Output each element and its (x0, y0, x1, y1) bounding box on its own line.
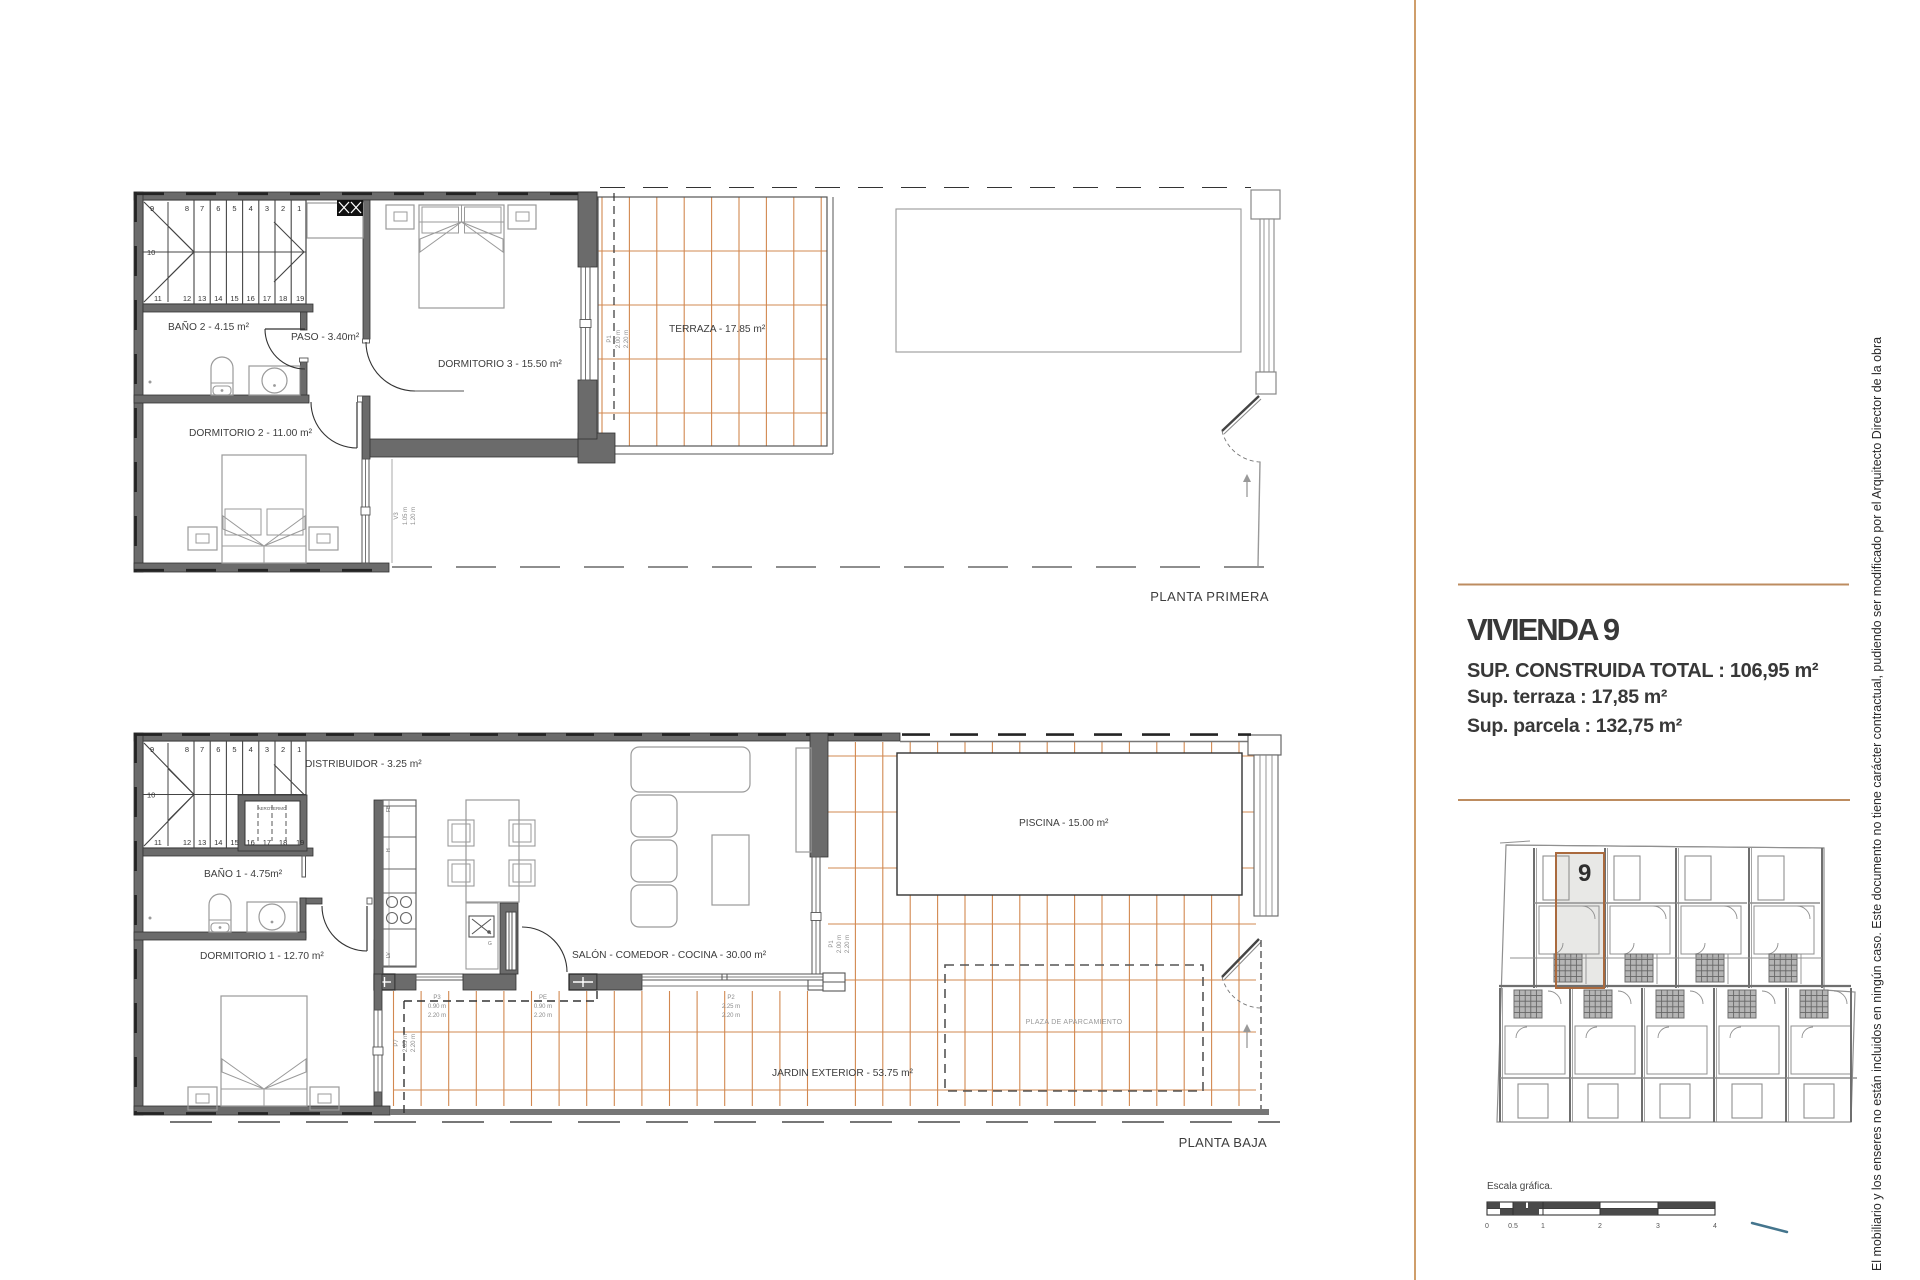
svg-text:5: 5 (232, 204, 236, 213)
svg-text:9: 9 (150, 204, 154, 213)
svg-text:14: 14 (214, 838, 222, 847)
svg-text:Escala gráfica.: Escala gráfica. (1487, 1181, 1553, 1192)
svg-text:DISTRIBUIDOR - 3.25 m²: DISTRIBUIDOR - 3.25 m² (305, 759, 422, 770)
svg-text:H: H (386, 848, 392, 852)
svg-text:12: 12 (183, 294, 191, 303)
svg-text:6: 6 (216, 204, 220, 213)
svg-text:Sup. parcela : 132,75 m²: Sup. parcela : 132,75 m² (1467, 715, 1683, 737)
svg-text:1: 1 (297, 745, 301, 754)
svg-text:17: 17 (263, 294, 271, 303)
svg-text:G: G (488, 941, 492, 947)
svg-text:AEROTERMO: AEROTERMO (257, 806, 287, 811)
svg-text:13: 13 (198, 294, 206, 303)
svg-text:18: 18 (279, 838, 287, 847)
svg-text:3: 3 (1656, 1223, 1660, 1230)
svg-text:2.20 m: 2.20 m (722, 1013, 740, 1019)
svg-text:PE: PE (539, 995, 547, 1001)
svg-text:3: 3 (265, 204, 269, 213)
svg-text:2: 2 (1598, 1223, 1602, 1230)
svg-text:4: 4 (1713, 1223, 1717, 1230)
svg-text:0.90 m: 0.90 m (534, 1004, 552, 1010)
svg-text:8: 8 (185, 745, 189, 754)
svg-text:2.20 m: 2.20 m (428, 1013, 446, 1019)
svg-text:2: 2 (281, 745, 285, 754)
svg-text:4: 4 (249, 204, 253, 213)
svg-text:1: 1 (297, 204, 301, 213)
svg-text:15: 15 (230, 838, 238, 847)
svg-text:V3: V3 (394, 512, 400, 520)
svg-text:DORMITORIO 3 - 15.50 m²: DORMITORIO 3 - 15.50 m² (438, 359, 562, 370)
svg-text:FB: FB (386, 805, 392, 812)
svg-text:P2: P2 (727, 995, 735, 1001)
svg-text:2.20 m: 2.20 m (411, 1034, 417, 1052)
svg-text:2.25 m: 2.25 m (722, 1004, 740, 1010)
svg-text:1.05 m: 1.05 m (403, 507, 409, 525)
svg-text:3: 3 (265, 745, 269, 754)
svg-text:2.20 m: 2.20 m (534, 1013, 552, 1019)
svg-text:19: 19 (296, 838, 304, 847)
svg-text:P1: P1 (829, 940, 835, 948)
svg-text:7: 7 (200, 745, 204, 754)
svg-text:2.00 m: 2.00 m (616, 330, 622, 348)
svg-text:P1: P1 (607, 335, 613, 343)
svg-text:2.00 m: 2.00 m (837, 935, 843, 953)
svg-text:9: 9 (150, 745, 154, 754)
svg-text:11: 11 (154, 838, 162, 847)
svg-text:2: 2 (281, 204, 285, 213)
svg-text:17: 17 (263, 838, 271, 847)
svg-text:16: 16 (247, 294, 255, 303)
svg-text:SUP. CONSTRUIDA TOTAL : 106,95: SUP. CONSTRUIDA TOTAL : 106,95 m² (1467, 660, 1819, 682)
svg-text:7: 7 (200, 204, 204, 213)
svg-text:JARDIN EXTERIOR - 53.75 m²: JARDIN EXTERIOR - 53.75 m² (772, 1068, 914, 1079)
svg-text:El mobiliario y los enseres no: El mobiliario y los enseres no están inc… (1870, 337, 1884, 1271)
svg-text:PLAZA DE APARCAMIENTO: PLAZA DE APARCAMIENTO (1026, 1019, 1123, 1026)
svg-text:1.20 m: 1.20 m (411, 507, 417, 525)
svg-text:15: 15 (230, 294, 238, 303)
svg-text:12: 12 (183, 838, 191, 847)
svg-text:Sup. terraza : 17,85 m²: Sup. terraza : 17,85 m² (1467, 686, 1668, 708)
svg-text:2.20 m: 2.20 m (624, 330, 630, 348)
svg-text:TERRAZA - 17.85 m²: TERRAZA - 17.85 m² (669, 324, 766, 335)
svg-text:5: 5 (232, 745, 236, 754)
svg-text:BAÑO 1 - 4.75m²: BAÑO 1 - 4.75m² (204, 867, 283, 880)
svg-text:0.90 m: 0.90 m (428, 1004, 446, 1010)
svg-text:0: 0 (1485, 1223, 1489, 1230)
svg-text:P3: P3 (433, 995, 441, 1001)
svg-text:13: 13 (198, 838, 206, 847)
svg-text:18: 18 (279, 294, 287, 303)
svg-text:9: 9 (1578, 860, 1591, 887)
svg-text:LV: LV (386, 952, 392, 958)
svg-text:PLANTA BAJA: PLANTA BAJA (1179, 1135, 1267, 1150)
svg-text:PISCINA - 15.00 m²: PISCINA - 15.00 m² (1019, 818, 1109, 829)
svg-text:0.5: 0.5 (1508, 1223, 1518, 1230)
svg-text:PLANTA PRIMERA: PLANTA PRIMERA (1150, 589, 1269, 604)
svg-text:8: 8 (185, 204, 189, 213)
svg-text:10: 10 (147, 791, 155, 800)
svg-text:11: 11 (154, 294, 162, 303)
svg-text:6: 6 (216, 745, 220, 754)
svg-text:1: 1 (1541, 1223, 1545, 1230)
svg-text:4: 4 (249, 745, 253, 754)
svg-text:DORMITORIO 2 - 11.00 m²: DORMITORIO 2 - 11.00 m² (189, 428, 313, 439)
svg-text:PASO - 3.40m²: PASO - 3.40m² (291, 332, 360, 343)
svg-text:2.20 m: 2.20 m (845, 935, 851, 953)
svg-text:16: 16 (247, 838, 255, 847)
svg-text:P7: P7 (394, 1039, 400, 1047)
svg-text:VIVIENDA 9: VIVIENDA 9 (1467, 612, 1620, 647)
svg-text:19: 19 (296, 294, 304, 303)
svg-text:DORMITORIO 1 - 12.70 m²: DORMITORIO 1 - 12.70 m² (200, 951, 324, 962)
svg-text:BAÑO 2 - 4.15 m²: BAÑO 2 - 4.15 m² (168, 320, 250, 333)
svg-text:2.05 m: 2.05 m (403, 1034, 409, 1052)
svg-text:10: 10 (147, 248, 155, 257)
svg-text:14: 14 (214, 294, 222, 303)
svg-text:SALÓN - COMEDOR - COCINA - 30.: SALÓN - COMEDOR - COCINA - 30.00 m² (572, 948, 767, 961)
